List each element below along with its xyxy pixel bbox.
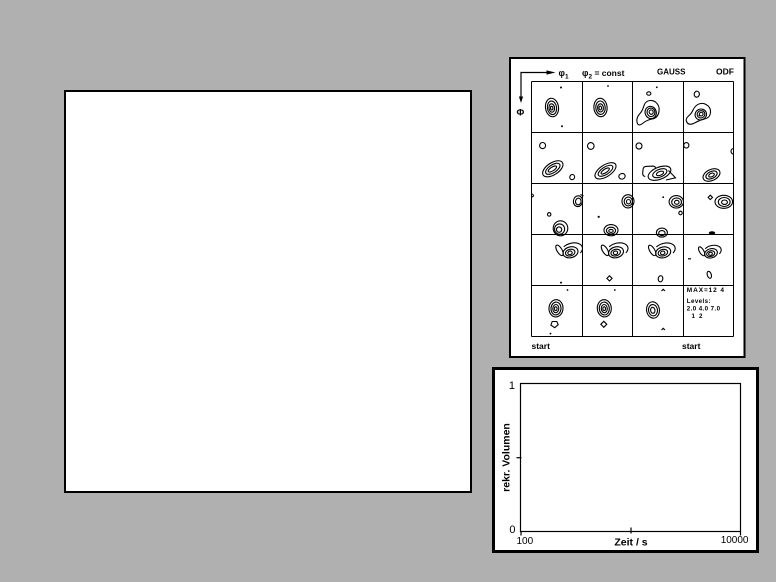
svg-text:Φ: Φ	[517, 108, 525, 119]
svg-text:2.0 4.0 7.0: 2.0 4.0 7.0	[687, 306, 721, 313]
svg-text:Levels:: Levels:	[687, 298, 711, 305]
svg-text:start: start	[682, 341, 701, 351]
svg-text:MAX=12 4: MAX=12 4	[687, 287, 725, 294]
svg-text:start: start	[532, 341, 551, 351]
svg-text:ODF: ODF	[716, 67, 734, 77]
svg-text:10000: 10000	[721, 535, 749, 546]
svg-text:1 2: 1 2	[692, 313, 704, 320]
svg-text:rekr. Volumen: rekr. Volumen	[501, 423, 513, 492]
svg-text:Zeit / s: Zeit / s	[614, 537, 647, 549]
svg-text:1: 1	[509, 380, 515, 392]
svg-text:GAUSS: GAUSS	[657, 68, 686, 77]
svg-text:100: 100	[517, 536, 534, 547]
svg-text:0: 0	[509, 524, 515, 536]
